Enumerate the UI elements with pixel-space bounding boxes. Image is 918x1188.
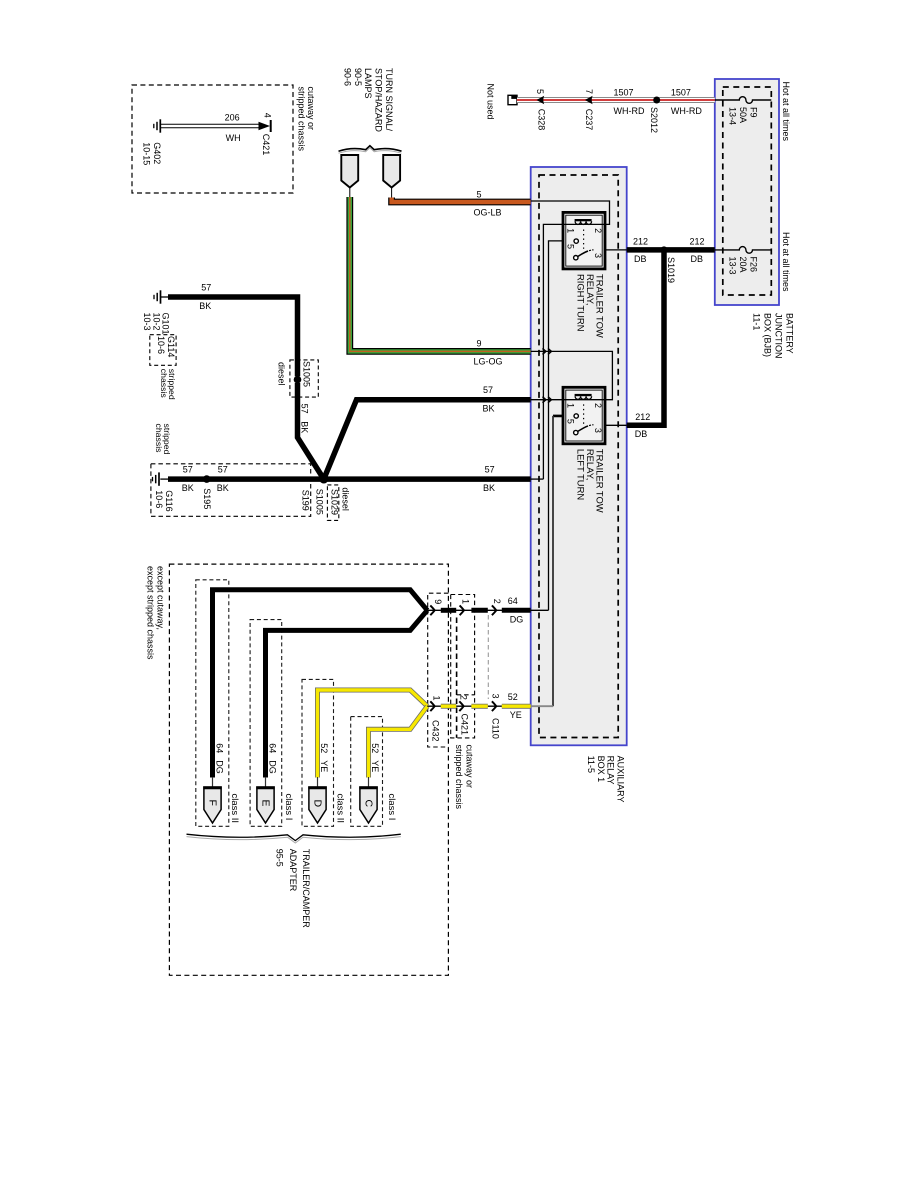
svg-text:C237: C237	[584, 109, 594, 131]
svg-text:5: 5	[535, 89, 545, 94]
svg-text:BK: BK	[199, 301, 211, 311]
svg-text:WH: WH	[226, 133, 241, 143]
svg-text:WH-RD: WH-RD	[614, 106, 645, 116]
svg-text:5: 5	[565, 419, 575, 424]
svg-text:1507: 1507	[614, 88, 634, 98]
svg-text:7: 7	[584, 89, 594, 94]
svg-text:F: F	[207, 800, 219, 806]
svg-text:64: 64	[508, 596, 518, 606]
svg-text:57: 57	[201, 283, 211, 293]
svg-text:OG-LB: OG-LB	[474, 207, 502, 217]
svg-text:206: 206	[225, 113, 240, 123]
svg-text:52: 52	[508, 692, 518, 702]
svg-text:C328: C328	[537, 109, 547, 131]
svg-text:BK: BK	[483, 483, 495, 493]
svg-text:class II: class II	[334, 794, 345, 824]
svg-text:class I: class I	[283, 794, 294, 821]
svg-text:212: 212	[633, 237, 648, 247]
svg-text:BK: BK	[299, 421, 309, 433]
svg-text:57: 57	[218, 465, 228, 475]
svg-text:C110: C110	[490, 718, 500, 739]
svg-text:3: 3	[593, 253, 603, 258]
svg-text:S1005: S1005	[315, 489, 325, 515]
svg-text:E: E	[260, 800, 272, 807]
svg-text:3: 3	[593, 428, 603, 433]
svg-text:class II: class II	[229, 794, 240, 824]
svg-text:57: 57	[485, 465, 495, 475]
svg-text:C432: C432	[430, 720, 440, 742]
svg-text:9: 9	[433, 599, 443, 604]
svg-text:DG: DG	[510, 614, 524, 624]
svg-text:3: 3	[491, 694, 501, 699]
svg-text:52: 52	[319, 743, 329, 753]
svg-text:64: 64	[268, 743, 278, 753]
svg-text:strippedchassis: strippedchassis	[154, 424, 172, 455]
svg-text:2: 2	[593, 403, 603, 408]
svg-text:S2012: S2012	[649, 107, 659, 133]
svg-text:strippedchassis: strippedchassis	[159, 369, 177, 400]
svg-text:1: 1	[460, 599, 470, 604]
svg-text:D: D	[312, 800, 324, 808]
svg-text:Hot at all times: Hot at all times	[781, 232, 791, 292]
svg-text:212: 212	[635, 412, 650, 422]
svg-text:9: 9	[477, 339, 482, 349]
svg-text:2: 2	[593, 228, 603, 233]
svg-text:S1029: S1029	[329, 489, 339, 515]
svg-text:DG: DG	[215, 760, 225, 774]
svg-text:57: 57	[299, 404, 309, 414]
svg-text:4: 4	[262, 113, 272, 118]
svg-text:diesel: diesel	[277, 362, 287, 386]
svg-text:DB: DB	[634, 254, 647, 264]
svg-text:YE: YE	[319, 760, 329, 772]
svg-text:57: 57	[183, 465, 193, 475]
svg-text:64: 64	[215, 743, 225, 753]
svg-text:G40210-15: G40210-15	[142, 142, 162, 165]
svg-text:1: 1	[565, 403, 575, 408]
svg-text:BK: BK	[483, 404, 495, 414]
svg-text:2: 2	[458, 695, 468, 700]
svg-text:5: 5	[477, 189, 482, 199]
svg-text:YE: YE	[370, 760, 380, 772]
svg-text:S1019: S1019	[666, 257, 676, 283]
svg-text:1507: 1507	[671, 88, 691, 98]
svg-text:1: 1	[565, 228, 575, 233]
svg-text:DB: DB	[691, 254, 704, 264]
svg-text:57: 57	[483, 385, 493, 395]
svg-text:F2620A13-3: F2620A13-3	[727, 257, 758, 275]
svg-text:class I: class I	[386, 794, 397, 821]
svg-text:YE: YE	[510, 710, 522, 720]
svg-text:DG: DG	[268, 760, 278, 774]
svg-text:S199: S199	[301, 490, 311, 511]
svg-text:5: 5	[565, 244, 575, 249]
svg-text:diesel: diesel	[340, 487, 350, 511]
svg-text:BK: BK	[217, 483, 229, 493]
svg-text:C: C	[363, 800, 375, 808]
svg-text:Not used: Not used	[486, 84, 496, 120]
svg-text:212: 212	[690, 237, 705, 247]
svg-text:DB: DB	[635, 429, 648, 439]
svg-text:S195: S195	[202, 488, 212, 509]
svg-text:2: 2	[492, 599, 502, 604]
svg-text:LG-OG: LG-OG	[474, 357, 503, 367]
svg-text:C421: C421	[261, 134, 271, 156]
svg-text:52: 52	[370, 743, 380, 753]
svg-text:Hot at all times: Hot at all times	[781, 82, 791, 142]
svg-text:WH-RD: WH-RD	[671, 106, 702, 116]
svg-text:S1005: S1005	[302, 361, 312, 387]
svg-text:BK: BK	[182, 483, 194, 493]
svg-text:1: 1	[432, 696, 442, 701]
svg-text:C421: C421	[460, 714, 470, 736]
